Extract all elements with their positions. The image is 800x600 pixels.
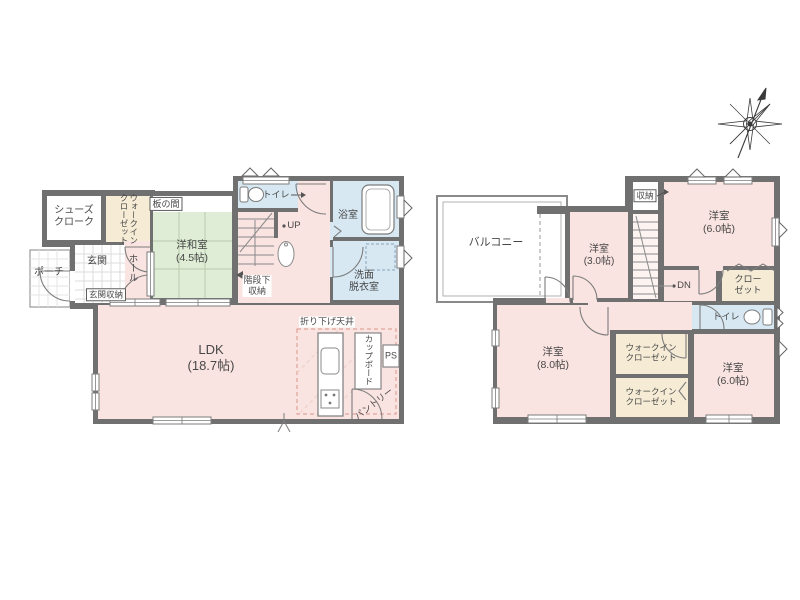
label-hall-1f: ホール [126,254,137,283]
label-bath: 浴室 [338,210,358,222]
toilet-icon-1f [240,187,264,202]
label-lowered-ceiling: 折り下げ天井 [299,317,355,328]
balcony-opening [546,298,570,303]
bathtub-icon [362,185,394,234]
label-cupboard: カップボード [363,335,373,386]
label-toilet-1f: トイレ [262,190,289,201]
label-toilet-2f: トイレ [712,312,739,323]
label-room-3jo: 洋室 (3.0帖) [584,244,615,268]
up-marker-dot [282,224,285,227]
label-wic-a: ウォークイン クローゼット [625,343,676,364]
label-genkan-storage: 玄関収納 [86,288,126,301]
bath-opening [330,222,333,240]
dn-marker-dot [672,284,675,287]
label-up: UP [287,220,300,232]
stair-wall-stub [274,212,278,238]
label-balcony: バルコニー [469,236,524,249]
label-shoes-cloak: シューズ クローク [54,205,94,229]
label-room-6jo-south: 洋室 (6.0帖) [717,362,749,388]
label-storage-2f: 収納 [633,189,656,202]
entry-door-opening [70,271,75,301]
label-room-8jo: 洋室 (8.0帖) [537,346,569,372]
label-porch: ポーチ [34,267,64,279]
label-washitsu: 洋和室 (4.5帖) [176,239,208,265]
room3-opening [573,298,597,303]
label-dn: DN [677,280,691,292]
washbasin-icon [278,242,294,267]
label-genkan: 玄関 [87,256,107,268]
label-closet-2f: クロー ゼット [734,274,761,296]
floorplan-canvas: シューズ クローク ウォークイン クローゼット 板の間 洋和室 (4.5帖) ポ… [0,0,800,600]
label-room-6jo-north: 洋室 (6.0帖) [703,210,735,236]
label-senmen: 洗面 脱衣室 [349,270,379,294]
compass-icon [718,88,782,158]
label-itanoma: 板の間 [149,197,182,211]
label-wic-b: ウォークイン クローゼット [625,387,676,408]
label-walk-in-closet-1f: ウォークイン クローゼット [118,194,138,245]
toilet2f-opening [692,305,696,329]
label-ldk: LDK (18.7帖) [188,342,235,374]
label-ps: PS [385,351,397,362]
kitchen-counter-icon [318,333,343,416]
label-under-stair-storage: 階段下 収納 [242,275,271,297]
room6n-opening [699,266,723,271]
